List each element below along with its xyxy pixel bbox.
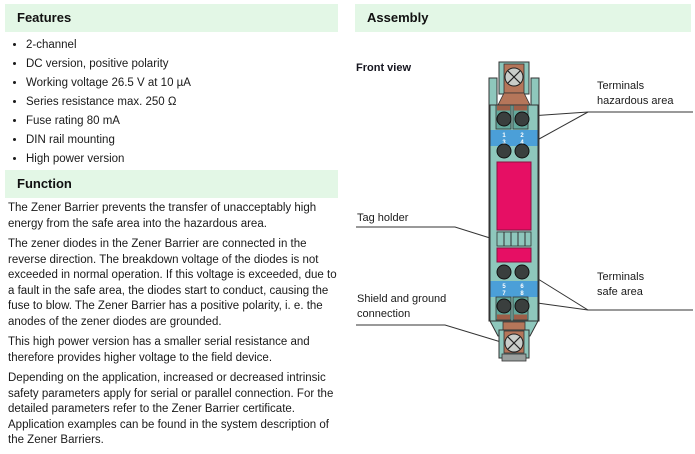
function-paragraph: Depending on the application, increased …	[8, 371, 339, 449]
function-paragraph: The Zener Barrier prevents the transfer …	[8, 201, 339, 232]
feature-item: Fuse rating 80 mA	[26, 112, 351, 131]
top-clamp	[497, 62, 531, 107]
features-list: 2-channel DC version, positive polarity …	[10, 36, 351, 169]
feature-item: DIN rail mounting	[26, 131, 351, 150]
function-body-text: The Zener Barrier prevents the transfer …	[8, 201, 339, 454]
function-title: Function	[17, 176, 72, 191]
feature-item: DC version, positive polarity	[26, 55, 351, 74]
feature-item: 2-channel	[26, 36, 351, 55]
leader-tag-holder	[356, 227, 490, 238]
terminal-screw	[497, 265, 511, 279]
assembly-section-header: Assembly	[355, 4, 691, 32]
leader-terminals-hazardous	[530, 112, 693, 116]
feature-item: Series resistance max. 250 Ω	[26, 93, 351, 112]
terminal-screw	[515, 265, 529, 279]
feature-item: Working voltage 26.5 V at 10 µA	[26, 74, 351, 93]
terminal-screw	[497, 112, 511, 126]
features-title: Features	[17, 10, 71, 25]
terminal-screw	[497, 299, 511, 313]
terminal-screw	[515, 144, 529, 158]
function-section-header: Function	[5, 170, 338, 198]
terminal-screw	[515, 112, 529, 126]
terminal-screw	[497, 144, 511, 158]
label-plate-bottom	[497, 248, 531, 262]
terminal-number-band-hazardous	[491, 130, 538, 146]
leader-terminals-safe	[530, 274, 693, 310]
assembly-title: Assembly	[367, 10, 428, 25]
function-paragraph: The zener diodes in the Zener Barrier ar…	[8, 237, 339, 330]
label-plate-top	[497, 162, 531, 230]
bottom-cap	[502, 354, 526, 361]
terminal-number-band-safe	[491, 281, 538, 297]
function-paragraph: This high power version has a smaller se…	[8, 335, 339, 366]
device-illustration: 1 3 2 4 5 7 6 8	[348, 36, 695, 446]
tag-holder	[497, 232, 531, 246]
features-section-header: Features	[5, 4, 338, 32]
terminal-screw	[515, 299, 529, 313]
feature-item: High power version	[26, 150, 351, 169]
leader-shield-ground	[356, 325, 501, 342]
